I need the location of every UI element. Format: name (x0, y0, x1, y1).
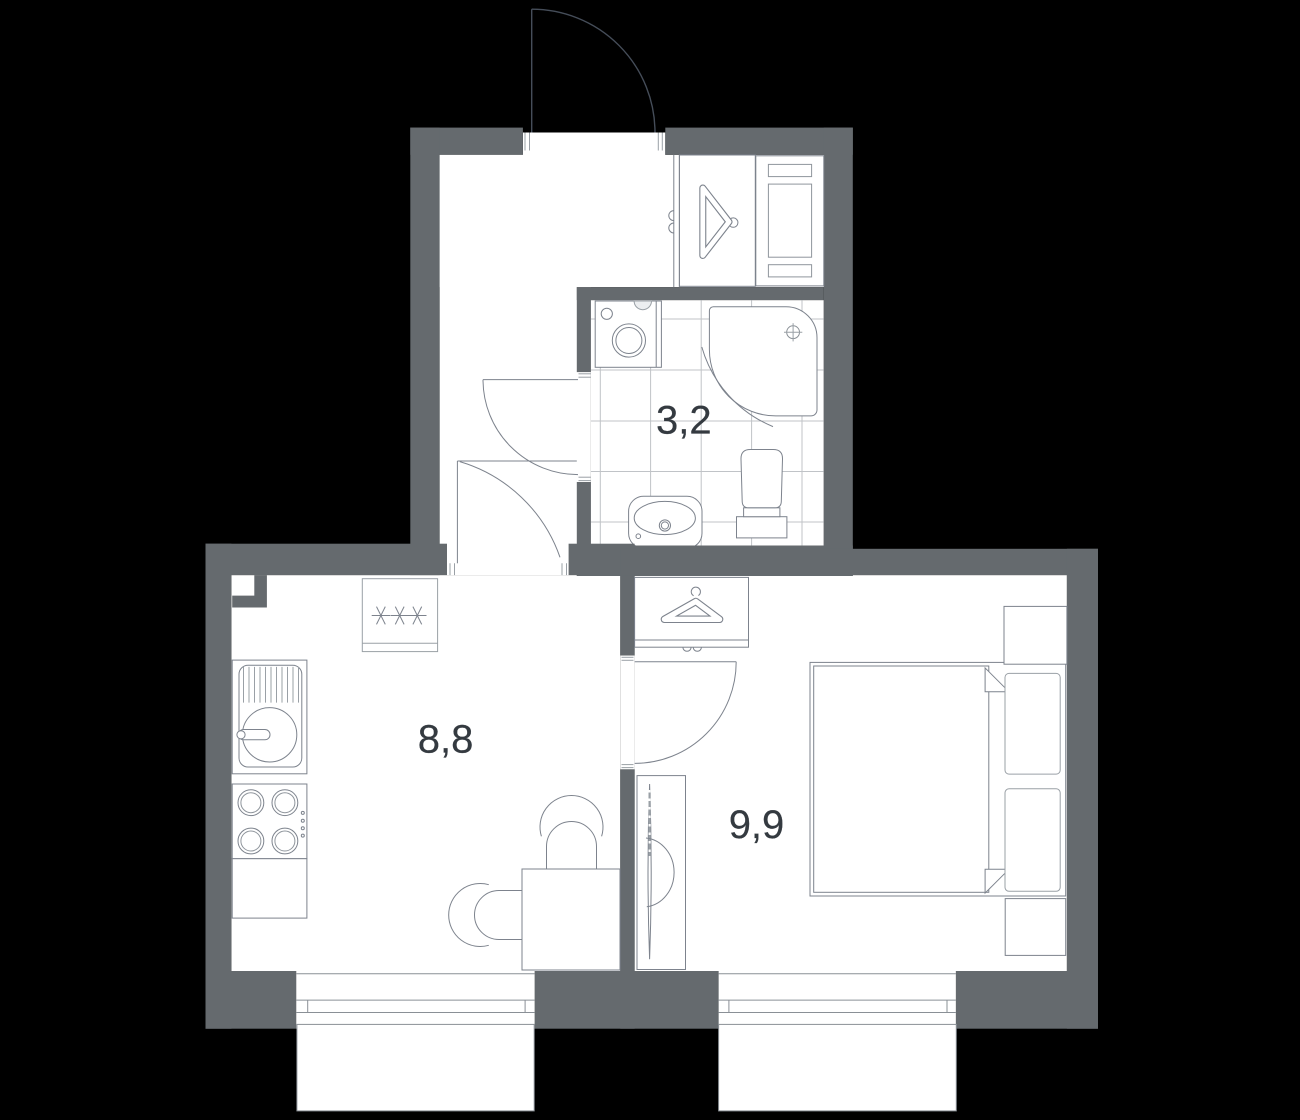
svg-text:3,2: 3,2 (656, 399, 712, 443)
svg-text:8,8: 8,8 (418, 717, 474, 761)
svg-text:9,9: 9,9 (729, 803, 785, 847)
